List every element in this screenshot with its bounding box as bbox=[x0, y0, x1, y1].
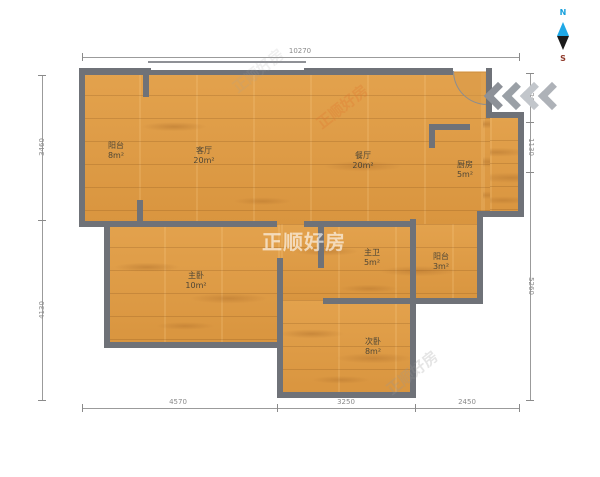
dim-left-2: 4130 bbox=[38, 301, 46, 319]
dim-bottom-1: 4570 bbox=[169, 398, 187, 406]
dim-tick bbox=[277, 404, 278, 412]
room-name: 厨房 bbox=[457, 160, 473, 170]
dim-bottom-3: 2450 bbox=[458, 398, 476, 406]
room-area: 20m² bbox=[193, 156, 214, 166]
dim-tick bbox=[526, 172, 534, 173]
dim-bottom-2: 3250 bbox=[337, 398, 355, 406]
room-area: 20m² bbox=[352, 161, 373, 171]
room-name: 主卧 bbox=[185, 271, 206, 281]
floor-plan-canvas: 阳台 8m² 客厅 20m² 餐厅 20m² 厨房 5m² 主卧 10m² 主卫… bbox=[0, 0, 600, 477]
room-name: 客厅 bbox=[193, 146, 214, 156]
wall-top-left bbox=[79, 68, 151, 75]
dim-tick bbox=[38, 400, 46, 401]
room-label-second: 次卧 8m² bbox=[365, 337, 381, 357]
dim-tick bbox=[38, 220, 46, 221]
dim-tick bbox=[82, 404, 83, 412]
dim-tick bbox=[415, 404, 416, 412]
compass-needle-north-icon bbox=[557, 22, 569, 36]
room-label-kitchen: 厨房 5m² bbox=[457, 160, 473, 180]
wall-kitchen-right bbox=[518, 112, 524, 217]
dim-tick bbox=[519, 53, 520, 61]
wall-top-mid bbox=[304, 68, 453, 75]
dim-tick bbox=[526, 73, 534, 74]
room-name: 餐厅 bbox=[352, 151, 373, 161]
wall-kitchen-L-vertical bbox=[429, 124, 435, 148]
dim-tick bbox=[526, 400, 534, 401]
room-area: 3m² bbox=[433, 262, 449, 272]
compass-needle-south-icon bbox=[557, 36, 569, 50]
room-name: 次卧 bbox=[365, 337, 381, 347]
room-label-bath: 主卫 5m² bbox=[364, 248, 380, 268]
wall-bath-bottom bbox=[323, 298, 483, 304]
dim-left-1: 3460 bbox=[38, 138, 46, 156]
chevron-left-icon bbox=[538, 82, 566, 110]
wall-stub-balcony8-top bbox=[143, 68, 149, 97]
wall-kitchen-L-horizontal bbox=[429, 124, 470, 130]
window-inner-wall bbox=[148, 70, 306, 75]
wall-master-bottom bbox=[104, 342, 283, 348]
wall-bedroom-divider bbox=[277, 258, 283, 398]
wall-balcony3-right bbox=[477, 211, 483, 304]
compass-north-label: N bbox=[550, 8, 576, 17]
wall-left-outer bbox=[79, 68, 85, 227]
dim-right-2: 1130 bbox=[527, 138, 535, 156]
room-area: 5m² bbox=[364, 258, 380, 268]
dim-top-total: 10270 bbox=[289, 47, 311, 55]
floor-kitchen bbox=[490, 117, 520, 215]
room-label-balcony3: 阳台 3m² bbox=[433, 252, 449, 272]
room-area: 10m² bbox=[185, 281, 206, 291]
room-label-master: 主卧 10m² bbox=[185, 271, 206, 291]
compass-south-label: S bbox=[550, 54, 576, 63]
room-area: 5m² bbox=[457, 170, 473, 180]
dim-tick bbox=[519, 404, 520, 412]
dim-line-top bbox=[82, 57, 520, 58]
dim-right-3: 5260 bbox=[527, 277, 535, 295]
room-name: 主卫 bbox=[364, 248, 380, 258]
brand-watermark-center: 正顺好房 bbox=[262, 226, 346, 255]
wall-master-left bbox=[104, 221, 110, 348]
wall-horizontal-a bbox=[79, 221, 277, 227]
dim-tick bbox=[526, 122, 534, 123]
dim-tick bbox=[82, 53, 83, 61]
dim-line-bottom bbox=[82, 408, 520, 409]
room-name: 阳台 bbox=[108, 141, 124, 151]
room-label-balcony8: 阳台 8m² bbox=[108, 141, 124, 161]
room-area: 8m² bbox=[365, 347, 381, 357]
dim-tick bbox=[38, 75, 46, 76]
compass: N S bbox=[550, 8, 576, 68]
room-label-living: 客厅 20m² bbox=[193, 146, 214, 166]
room-label-dining: 餐厅 20m² bbox=[352, 151, 373, 171]
wall-step-kitchen-bottom bbox=[477, 211, 524, 217]
room-name: 阳台 bbox=[433, 252, 449, 262]
room-area: 8m² bbox=[108, 151, 124, 161]
dim-line-left bbox=[42, 75, 43, 400]
